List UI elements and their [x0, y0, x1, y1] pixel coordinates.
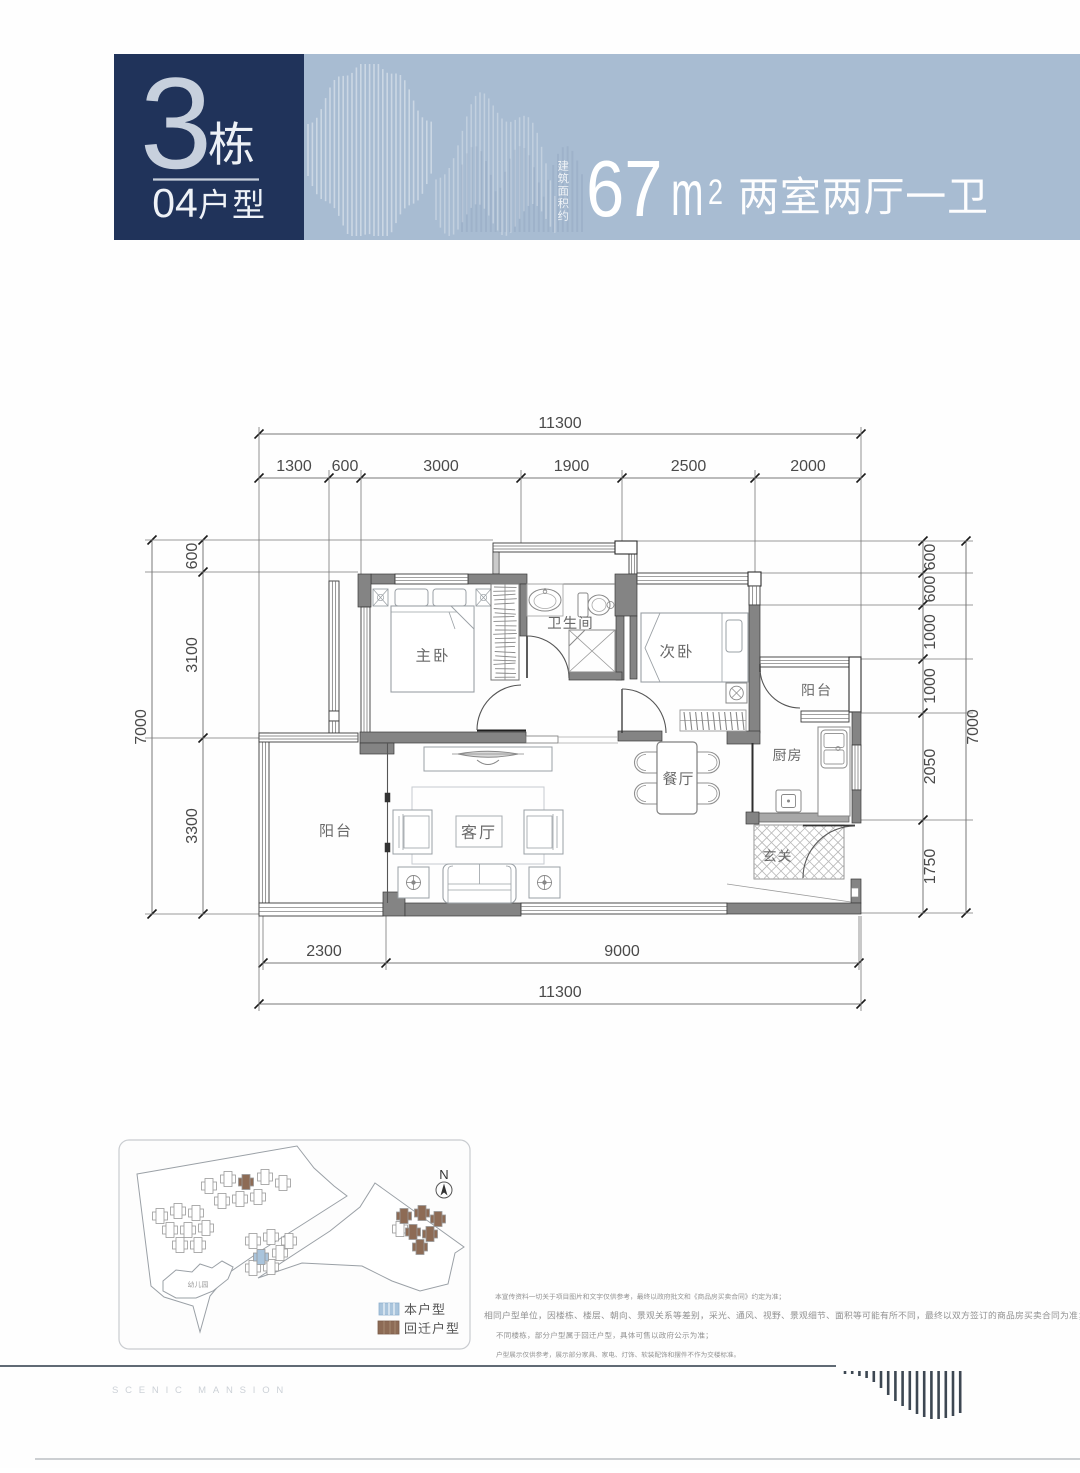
svg-text:2050: 2050 — [922, 749, 939, 785]
svg-text:2000: 2000 — [790, 458, 826, 475]
svg-text:3300: 3300 — [184, 808, 201, 844]
svg-text:1300: 1300 — [276, 458, 312, 475]
svg-text:600: 600 — [922, 544, 939, 571]
svg-text:11300: 11300 — [538, 415, 581, 432]
svg-text:600: 600 — [922, 576, 939, 603]
svg-text:1000: 1000 — [922, 614, 939, 650]
svg-text:2300: 2300 — [306, 943, 342, 960]
svg-text:600: 600 — [332, 458, 359, 475]
svg-text:11300: 11300 — [538, 984, 581, 1001]
svg-text:3: 3 — [140, 50, 212, 196]
svg-text:1900: 1900 — [554, 458, 590, 475]
svg-text:2: 2 — [708, 173, 723, 212]
svg-text:600: 600 — [184, 543, 201, 570]
svg-text:3000: 3000 — [423, 458, 459, 475]
svg-text:04: 04 — [152, 180, 198, 226]
svg-text:N: N — [439, 1167, 448, 1182]
svg-text:7000: 7000 — [133, 709, 150, 745]
svg-text:1750: 1750 — [922, 849, 939, 885]
svg-text:9000: 9000 — [604, 943, 640, 960]
svg-text:1000: 1000 — [922, 668, 939, 704]
svg-text:SCENIC MANSION: SCENIC MANSION — [112, 1385, 290, 1396]
svg-text:67: 67 — [586, 143, 663, 233]
svg-text:2500: 2500 — [671, 458, 707, 475]
svg-text:7000: 7000 — [965, 709, 982, 745]
svg-text:m: m — [671, 160, 704, 230]
svg-text:3100: 3100 — [184, 637, 201, 673]
